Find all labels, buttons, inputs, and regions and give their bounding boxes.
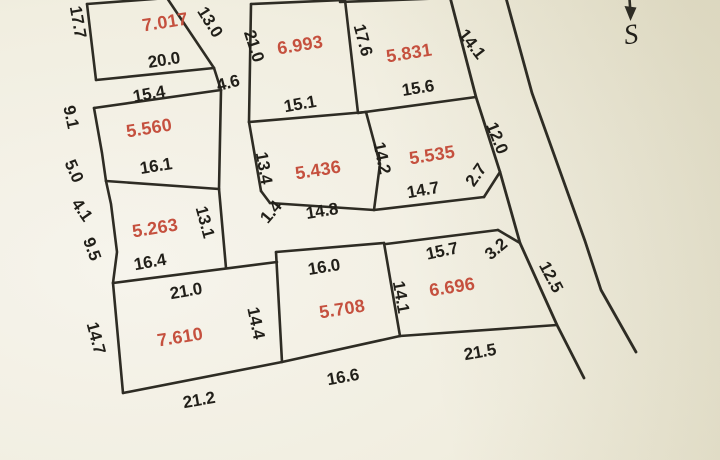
parcel-area-label: 5.263 [131,215,180,242]
dimension-label: 16.0 [307,255,342,279]
parcel-area-label: 5.535 [408,142,457,169]
parcel-area-label: 6.696 [428,274,477,301]
dimension-label: 16.4 [132,250,168,274]
boundary-5831-south [358,97,476,113]
dimension-label: 15.6 [401,76,436,100]
dimension-label: 21.0 [240,28,268,65]
parcel-area-label: 7.610 [156,324,205,351]
boundary-7017-west [87,4,96,80]
boundary-5263-west [106,181,117,283]
parcel-area-label: 6.993 [276,32,325,59]
dimension-label: 14.1 [389,279,413,314]
boundary-7610-east [276,252,282,362]
boundary-7017-north [87,0,167,4]
dimension-label: 13.4 [252,150,276,186]
dimension-label: 14.4 [243,305,268,341]
dimension-label: 20.0 [147,48,182,72]
boundary-5535-south [374,197,484,210]
parcel-area-label: 5.708 [318,296,367,323]
north-arrow-label: S [622,19,640,52]
plat-svg: 17.713.020.015.44.69.15.016.14.19.521.01… [0,0,720,460]
boundary-5560-west [94,108,106,181]
dimension-label: 21.0 [168,279,203,303]
dimension-label: 13.0 [193,3,226,40]
dimension-label: 15.4 [131,82,167,106]
dimension-label: 21.5 [462,340,497,364]
boundary-5263-east [219,189,226,268]
parcel-area-label: 5.436 [294,157,343,184]
dimension-label: 12.0 [482,119,512,156]
dimension-label: 16.1 [139,154,174,178]
dimension-label: 14.7 [83,320,110,356]
parcel-area-label: 7.017 [141,9,190,36]
dimension-label: 21.2 [181,388,216,412]
road-east-edge [506,0,636,352]
dimension-label: 17.6 [350,22,377,58]
dimension-label: 1.4 [256,197,286,227]
parcel-area-label: 5.831 [385,40,434,67]
dimension-label: 14.8 [305,199,340,223]
boundary-5708-north [276,243,384,252]
boundary-6993-north [251,0,344,4]
dimension-label: 2.7 [462,160,491,190]
boundary-5708-south [282,336,400,362]
dimension-label: 4.1 [68,195,97,225]
boundary-6993-south [249,112,366,122]
dimension-label: 15.7 [424,238,460,263]
boundary-5560-south [106,181,219,189]
dimension-label: 3.2 [481,234,511,263]
dimension-label: 13.1 [192,204,219,240]
boundary-7610-south [123,362,282,393]
dimension-label: 5.0 [61,157,88,186]
boundary-6993-east [345,0,358,113]
dimension-label: 9.1 [59,104,82,130]
cadastral-plat-map: 17.713.020.015.44.69.15.016.14.19.521.01… [0,0,720,460]
dimension-label: 9.5 [79,235,105,263]
boundary-5560-east [219,90,221,189]
dimension-label: 4.6 [214,71,241,95]
parcel-area-label: 5.560 [125,115,174,142]
dimension-label: 14.2 [369,140,394,176]
boundary-7610-west [113,283,123,393]
dimension-label: 15.1 [282,92,317,116]
dimension-label: 16.6 [325,365,360,389]
boundary-5831-north [340,0,448,2]
boundary-6696-south [400,325,557,336]
dimension-label: 14.7 [405,178,440,202]
